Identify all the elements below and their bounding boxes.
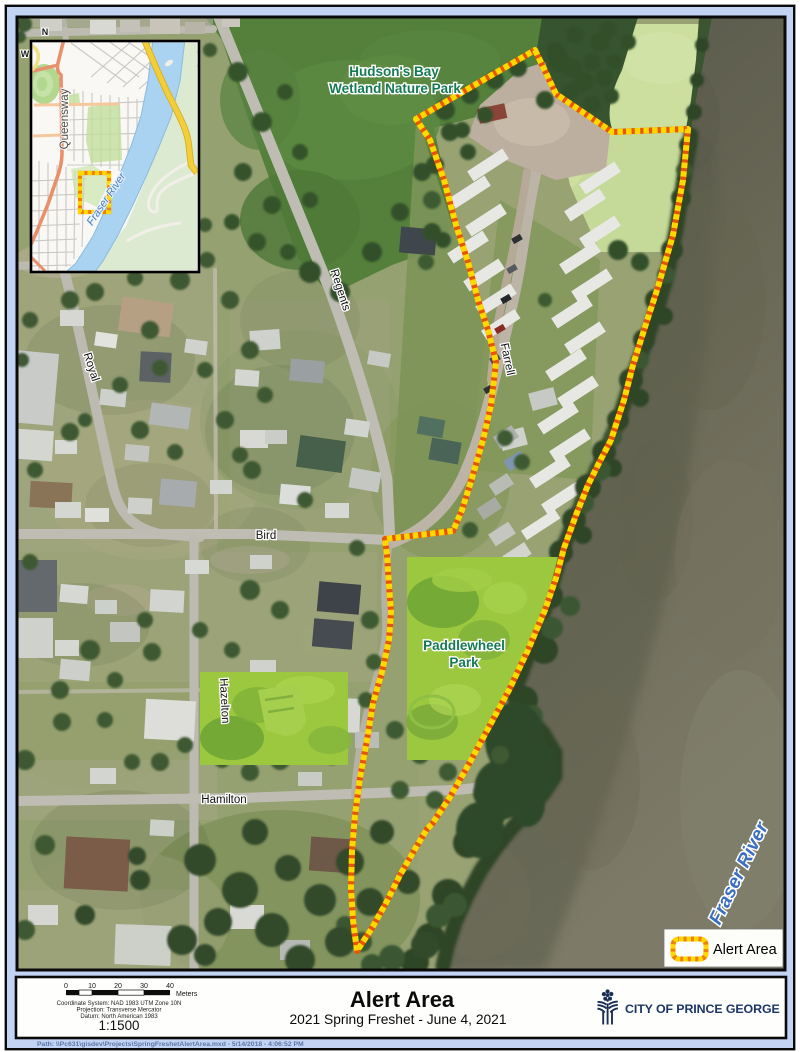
svg-text:10: 10 [88,983,96,990]
svg-text:1:1500: 1:1500 [99,1018,140,1033]
svg-text:30: 30 [140,983,148,990]
svg-text:N: N [42,27,49,37]
svg-text:Park: Park [449,655,479,670]
svg-text:Hudson's Bay: Hudson's Bay [349,64,439,79]
svg-text:Wetland Nature Park: Wetland Nature Park [329,81,461,96]
svg-text:40: 40 [166,983,174,990]
svg-text:Hazelton: Hazelton [217,678,231,724]
svg-text:2021 Spring Freshet - June 4,: 2021 Spring Freshet - June 4, 2021 [289,1012,506,1027]
svg-text:Path: \\Pc631\gisdev\Projects\: Path: \\Pc631\gisdev\Projects\SpringFres… [37,1041,304,1048]
svg-text:0: 0 [64,983,68,990]
svg-text:Paddlewheel: Paddlewheel [423,638,505,653]
svg-text:Meters: Meters [176,991,198,998]
svg-text:CITY OF PRINCE GEORGE: CITY OF PRINCE GEORGE [625,1002,780,1016]
svg-text:Hamilton: Hamilton [201,794,246,806]
svg-text:Queensway: Queensway [59,88,71,149]
svg-text:Alert Area: Alert Area [713,942,778,958]
svg-text:W: W [21,49,30,59]
svg-text:20: 20 [114,983,122,990]
svg-text:Coordinate System: NAD 1983 UT: Coordinate System: NAD 1983 UTM Zone 10N [57,1001,182,1007]
svg-text:Alert Area: Alert Area [350,987,455,1012]
svg-text:Projection: Transverse Mercato: Projection: Transverse Mercator [76,1008,161,1014]
svg-text:Bird: Bird [256,530,276,542]
